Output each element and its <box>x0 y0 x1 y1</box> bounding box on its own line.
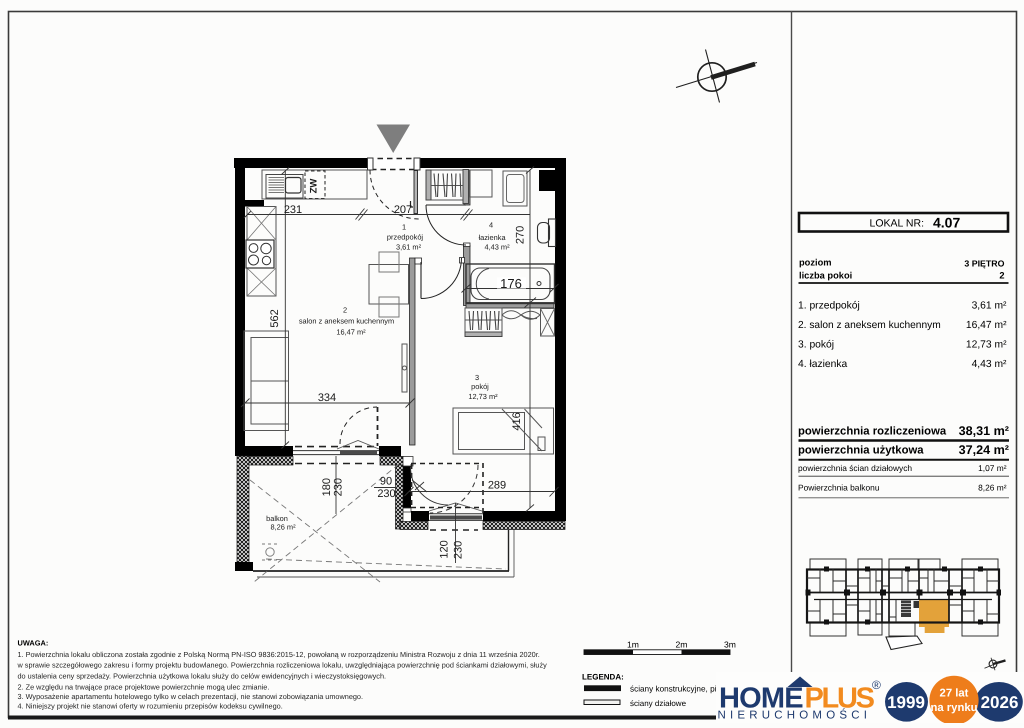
svg-text:120: 120 <box>439 540 451 558</box>
svg-text:3m: 3m <box>724 640 736 650</box>
svg-text:270: 270 <box>515 226 527 244</box>
svg-text:3,61 m²: 3,61 m² <box>972 300 1007 311</box>
svg-text:8,26 m²: 8,26 m² <box>270 523 296 532</box>
svg-text:37,24 m²: 37,24 m² <box>959 443 1009 457</box>
svg-text:176: 176 <box>500 276 522 291</box>
svg-text:334: 334 <box>318 392 336 404</box>
svg-text:231: 231 <box>284 204 302 216</box>
svg-text:1. przedpokój: 1. przedpokój <box>798 300 860 311</box>
svg-text:3. pokój: 3. pokój <box>798 339 834 350</box>
svg-text:230: 230 <box>332 478 344 496</box>
svg-text:562: 562 <box>269 309 281 327</box>
svg-text:8,26 m²: 8,26 m² <box>978 482 1007 492</box>
svg-text:powierzchnia rozliczeniowa: powierzchnia rozliczeniowa <box>798 425 947 437</box>
svg-text:27 lat: 27 lat <box>940 688 969 700</box>
svg-text:416: 416 <box>511 412 523 430</box>
svg-text:90: 90 <box>380 476 392 488</box>
svg-text:230: 230 <box>453 541 465 559</box>
svg-text:3 PIĘTRO: 3 PIĘTRO <box>964 258 1004 268</box>
svg-text:1: 1 <box>402 223 406 232</box>
svg-text:12,73 m²: 12,73 m² <box>966 339 1007 350</box>
svg-text:pokój: pokój <box>471 382 489 391</box>
svg-text:2. Ze względu na trwające prac: 2. Ze względu na trwające prace projekto… <box>18 682 270 691</box>
svg-text:180: 180 <box>321 478 333 496</box>
svg-text:do ustalenia ceny sprzedaży. P: do ustalenia ceny sprzedaży. Powierzchni… <box>18 672 387 681</box>
svg-text:na rynku: na rynku <box>930 702 977 714</box>
svg-text:4,43 m²: 4,43 m² <box>484 242 510 251</box>
svg-text:2026: 2026 <box>981 693 1019 712</box>
svg-text:4. łazienka: 4. łazienka <box>798 359 848 370</box>
svg-text:1. Powierzchnia lokalu obliczo: 1. Powierzchnia lokalu obliczona została… <box>18 650 540 659</box>
svg-text:3. Wyposażenie apartamentu hot: 3. Wyposażenie apartamentu hotelowego ty… <box>18 692 364 701</box>
svg-text:ściany działowe: ściany działowe <box>630 699 687 708</box>
svg-text:4: 4 <box>489 221 493 230</box>
svg-text:12,73 m²: 12,73 m² <box>468 392 498 401</box>
svg-text:salon z aneksem kuchennym: salon z aneksem kuchennym <box>299 316 394 325</box>
svg-text:1m: 1m <box>627 640 639 650</box>
svg-text:4.07: 4.07 <box>933 215 960 231</box>
svg-text:NIERUCHOMOŚCI: NIERUCHOMOŚCI <box>718 707 872 721</box>
svg-text:207: 207 <box>394 204 412 216</box>
svg-text:230: 230 <box>377 488 395 500</box>
svg-text:liczba pokoi: liczba pokoi <box>799 270 852 280</box>
svg-text:Powierzchnia balkonu: Powierzchnia balkonu <box>798 482 880 492</box>
svg-text:4. Niniejszy projekt nie stano: 4. Niniejszy projekt nie stanowi oferty … <box>18 701 283 710</box>
svg-text:1,07 m²: 1,07 m² <box>978 463 1007 473</box>
svg-text:ZW: ZW <box>309 179 320 194</box>
svg-text:w sprawie szczegółowego zakres: w sprawie szczegółowego zakresu i formy … <box>17 661 548 670</box>
svg-text:łazienka: łazienka <box>478 233 506 242</box>
svg-text:®: ® <box>872 678 881 692</box>
svg-text:poziom: poziom <box>799 258 832 268</box>
svg-text:1999: 1999 <box>887 693 925 712</box>
svg-text:UWAGA:: UWAGA: <box>18 638 49 647</box>
svg-text:LEGENDA:: LEGENDA: <box>582 673 624 682</box>
svg-text:2: 2 <box>999 270 1004 280</box>
svg-text:289: 289 <box>488 480 506 492</box>
svg-text:38,31 m²: 38,31 m² <box>959 424 1009 438</box>
svg-text:3,61 m²: 3,61 m² <box>396 243 422 252</box>
svg-text:16,47 m²: 16,47 m² <box>966 320 1007 331</box>
svg-text:2: 2 <box>343 305 347 314</box>
svg-text:powierzchnia ścian działowych: powierzchnia ścian działowych <box>798 463 912 473</box>
svg-text:2m: 2m <box>676 640 688 650</box>
svg-text:16,47 m²: 16,47 m² <box>336 327 366 336</box>
svg-text:powierzchnia użytkowa: powierzchnia użytkowa <box>798 444 924 456</box>
svg-text:2. salon z aneksem kuchennym: 2. salon z aneksem kuchennym <box>798 320 941 331</box>
svg-text:przedpokój: przedpokój <box>387 233 424 242</box>
svg-text:LOKAL NR:: LOKAL NR: <box>870 218 924 230</box>
svg-text:3: 3 <box>475 373 479 382</box>
svg-text:4,43 m²: 4,43 m² <box>972 359 1007 370</box>
